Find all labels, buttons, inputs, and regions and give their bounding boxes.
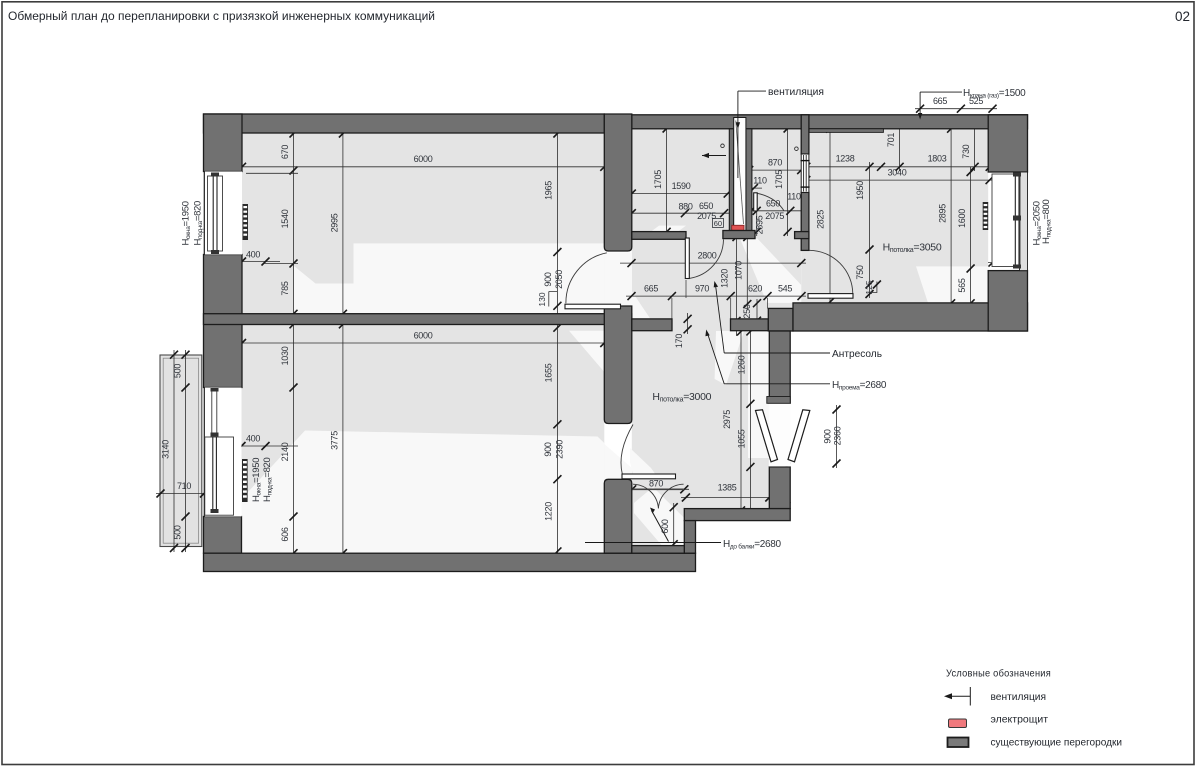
svg-text:500: 500 — [173, 364, 183, 378]
svg-text:710: 710 — [177, 481, 191, 491]
svg-text:785: 785 — [280, 281, 290, 295]
svg-text:600: 600 — [660, 519, 670, 533]
svg-text:565: 565 — [957, 278, 967, 292]
svg-text:545: 545 — [778, 284, 792, 294]
svg-text:1070: 1070 — [734, 261, 744, 280]
svg-text:6000: 6000 — [414, 154, 433, 164]
svg-text:1540: 1540 — [280, 209, 290, 228]
svg-text:Условные обозначения: Условные обозначения — [946, 668, 1051, 680]
svg-text:2895: 2895 — [938, 204, 948, 223]
svg-text:вентиляция: вентиляция — [768, 86, 824, 98]
svg-text:2825: 2825 — [816, 210, 826, 229]
svg-text:1950: 1950 — [855, 181, 865, 200]
svg-text:1320: 1320 — [720, 269, 730, 288]
svg-text:1655: 1655 — [544, 363, 554, 382]
svg-text:2895: 2895 — [755, 215, 765, 234]
svg-text:1238: 1238 — [836, 154, 855, 164]
svg-text:970: 970 — [695, 284, 709, 294]
svg-text:500: 500 — [173, 525, 183, 539]
svg-text:1590: 1590 — [672, 181, 691, 191]
svg-text:вентиляция: вентиляция — [991, 691, 1047, 703]
svg-text:900: 900 — [543, 442, 553, 456]
svg-text:880: 880 — [678, 202, 692, 212]
svg-text:Нпроема=2680: Нпроема=2680 — [832, 380, 887, 392]
svg-text:60: 60 — [714, 219, 722, 228]
svg-text:665: 665 — [644, 284, 658, 294]
svg-text:250: 250 — [742, 304, 752, 318]
svg-text:400: 400 — [246, 250, 260, 260]
svg-text:110: 110 — [787, 191, 801, 201]
svg-text:1705: 1705 — [774, 170, 784, 189]
svg-text:1220: 1220 — [544, 502, 554, 521]
svg-text:6000: 6000 — [414, 331, 433, 341]
svg-text:1965: 1965 — [544, 181, 554, 200]
svg-text:400: 400 — [246, 434, 260, 444]
svg-text:существующие перегородки: существующие перегородки — [991, 737, 1123, 749]
svg-text:Нпод-ка=820: Нпод-ка=820 — [193, 201, 205, 246]
svg-text:665: 665 — [933, 96, 947, 106]
svg-text:606: 606 — [280, 527, 290, 541]
svg-text:Нокна=1950: Нокна=1950 — [181, 201, 193, 245]
svg-text:1260: 1260 — [737, 355, 747, 374]
svg-text:02: 02 — [1175, 9, 1190, 24]
svg-text:1600: 1600 — [957, 209, 967, 228]
svg-text:900: 900 — [823, 429, 833, 443]
svg-text:2360: 2360 — [833, 426, 843, 445]
svg-text:170: 170 — [674, 334, 684, 348]
svg-text:1055: 1055 — [737, 429, 747, 448]
svg-text:125: 125 — [864, 280, 874, 294]
svg-text:130: 130 — [537, 292, 547, 306]
svg-text:730: 730 — [961, 144, 971, 158]
svg-text:1030: 1030 — [280, 346, 290, 365]
svg-text:1803: 1803 — [928, 154, 947, 164]
svg-text:электрощит: электрощит — [991, 713, 1049, 725]
svg-text:701: 701 — [886, 133, 896, 147]
svg-text:870: 870 — [768, 158, 782, 168]
svg-text:3140: 3140 — [161, 440, 171, 459]
svg-text:2140: 2140 — [280, 442, 290, 461]
svg-text:3775: 3775 — [330, 431, 340, 450]
svg-text:620: 620 — [748, 284, 762, 294]
svg-text:650: 650 — [699, 201, 713, 211]
svg-text:750: 750 — [855, 265, 865, 279]
svg-text:2390: 2390 — [555, 440, 565, 459]
svg-text:Антресоль: Антресоль — [832, 349, 882, 360]
svg-text:1705: 1705 — [653, 170, 663, 189]
svg-text:670: 670 — [280, 145, 290, 159]
svg-text:1385: 1385 — [718, 483, 737, 493]
svg-text:2995: 2995 — [330, 213, 340, 232]
svg-text:Нкрана (газ)=1500: Нкрана (газ)=1500 — [963, 88, 1026, 100]
svg-text:2050: 2050 — [554, 270, 564, 289]
svg-text:870: 870 — [649, 479, 663, 489]
svg-text:Обмерный план до перепланировк: Обмерный план до перепланировки с призяз… — [8, 9, 435, 23]
svg-text:2975: 2975 — [722, 410, 732, 429]
svg-text:2800: 2800 — [698, 251, 717, 261]
svg-text:110: 110 — [753, 176, 767, 186]
svg-text:Ндо балки=2680: Ндо балки=2680 — [723, 539, 782, 551]
svg-text:2075: 2075 — [765, 211, 784, 221]
svg-text:900: 900 — [543, 272, 553, 286]
